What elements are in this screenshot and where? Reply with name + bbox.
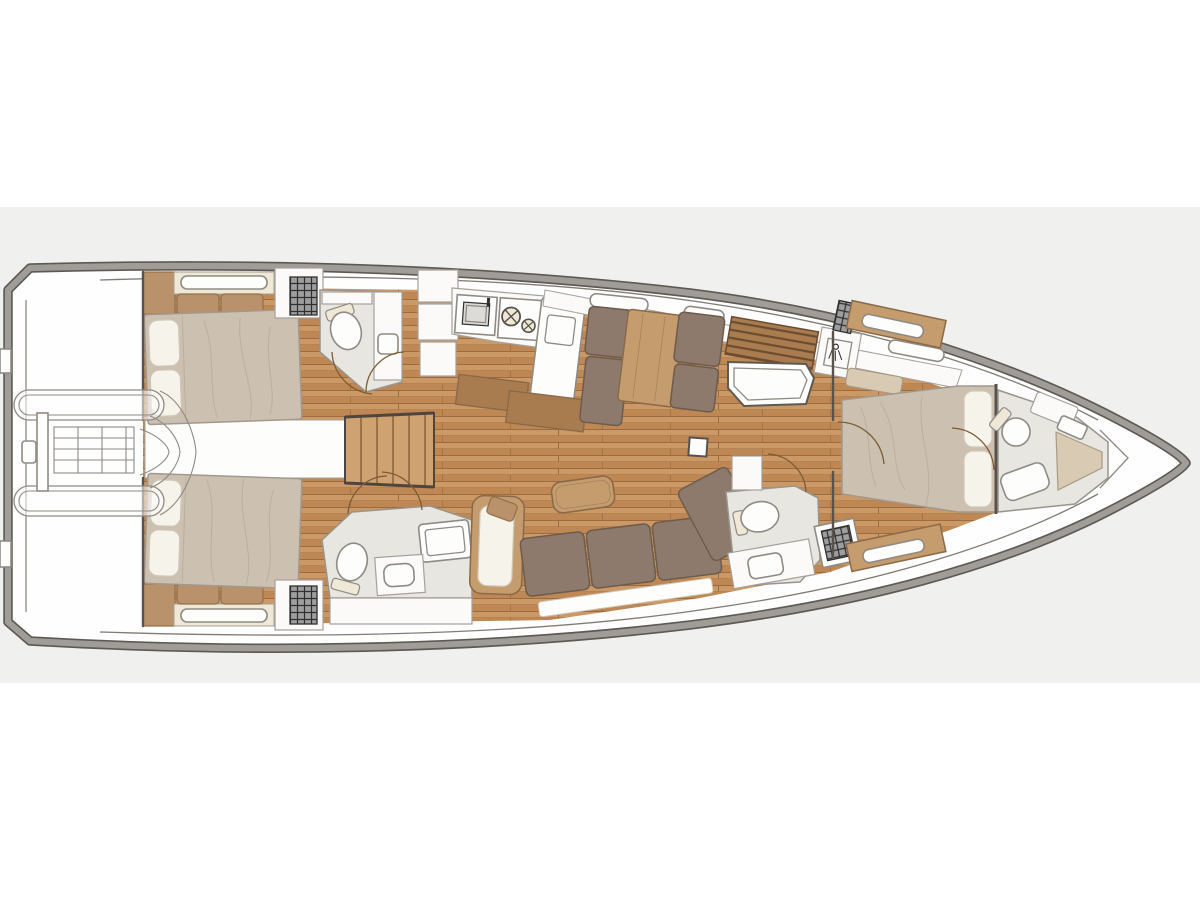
sink [383,563,414,587]
cabinet [732,456,762,490]
double-bed [144,309,302,424]
seat-cushion [670,364,719,413]
shelf [322,292,372,304]
faucet [487,298,491,307]
stair-treads [345,413,434,487]
outboard-motor [22,441,36,463]
aft-cabin-bottom [143,473,323,630]
double-bed [144,473,302,588]
toilet-bowl [1002,418,1030,446]
sink [378,334,398,354]
wardrobe-louver [290,586,317,624]
sink [747,552,784,580]
headboard-cushion [177,584,219,604]
hull-cabinet [330,598,472,624]
headboard-cushion [177,294,219,314]
transom-step-top [0,349,11,373]
transom-step-bottom [0,541,11,567]
vanity [375,554,426,595]
sofa-cushion [520,531,591,596]
engine-room [145,420,345,478]
shower [418,519,472,562]
sofa-cushion [586,523,657,588]
hull-window [181,276,267,289]
dinghy-transom [37,413,48,491]
corner-cabinet [143,584,175,626]
aft-cabin-top [143,268,323,425]
stove [498,298,543,341]
floor-plan-canvas [0,0,1200,900]
mast-post [688,437,707,456]
hull-window [181,609,267,622]
pillow [148,529,180,576]
pillow [964,451,992,507]
companionway-stairs [345,413,434,487]
corner-cabinet [143,272,175,314]
pillow [148,319,180,366]
head-aft-bottom [322,506,472,624]
seat-cushion [673,312,725,367]
galley-sink-unit [455,295,498,336]
wardrobe-louver [290,277,317,315]
galley-cabinet [420,342,456,376]
yacht-floor-plan [0,0,1200,900]
